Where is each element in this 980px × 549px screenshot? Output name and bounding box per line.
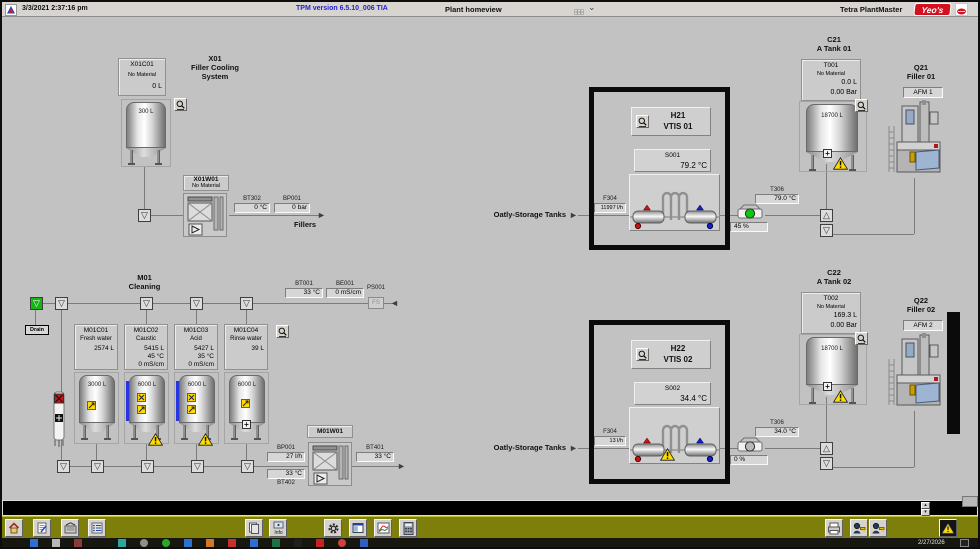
bt401-label: BT401 <box>356 445 394 452</box>
valve-icon[interactable]: ▽ <box>140 297 153 310</box>
tank-material: Rinse water <box>225 336 267 342</box>
tray-icon[interactable] <box>900 540 906 549</box>
sensor-value: 79.2 °C <box>635 161 710 170</box>
unit-id: H21 <box>648 111 708 120</box>
m01c03-info-box[interactable]: M01C03 Acid 5427 L 35 °C 0 mS/cm <box>174 324 218 370</box>
sprayball-icon <box>187 389 196 398</box>
vtis-exchanger-graphic[interactable] <box>629 407 720 464</box>
heat-exchanger-graphic[interactable] <box>308 442 352 491</box>
menu-list-button[interactable] <box>88 519 106 537</box>
info-button-label: Info <box>274 530 283 535</box>
pipe <box>914 411 915 467</box>
tank-volume: 0 L <box>119 83 165 90</box>
valve-icon[interactable]: ▽ <box>240 297 253 310</box>
x01-tank-graphic[interactable]: 300 L <box>121 99 171 167</box>
magnifier-icon[interactable] <box>855 332 868 345</box>
tank-material: No Material <box>802 304 860 310</box>
f304-value: 11997 l/h <box>594 203 626 213</box>
tank-id: T002 <box>802 295 860 302</box>
pipe <box>36 303 394 304</box>
keyboard-button[interactable] <box>61 519 79 537</box>
pipe <box>832 234 914 235</box>
m01w01-label-box[interactable]: M01W01 <box>307 425 353 438</box>
level-bar <box>176 381 179 421</box>
warning-icon[interactable] <box>148 433 163 451</box>
tank-capacity-label: 6000 L <box>129 382 165 389</box>
header-bar: 3/3/2021 2:37:16 pm TPM version 6.5.10_0… <box>2 2 978 17</box>
taskbar-app-icon[interactable] <box>184 539 192 547</box>
tank-temp: 35 °C <box>175 353 217 360</box>
layout-grid-icon[interactable] <box>574 5 584 23</box>
taskbar-app-icon[interactable] <box>360 539 368 547</box>
tank-volume: 2574 L <box>75 345 117 352</box>
valve-icon[interactable]: ▽ <box>91 460 104 473</box>
tank-id: X01C01 <box>119 61 165 68</box>
agitator-icon <box>137 401 146 410</box>
home-button[interactable] <box>5 519 23 537</box>
t001-info-box[interactable]: T001 No Material 0.0 L 0.00 Bar <box>801 59 861 101</box>
tank-volume: 39 L <box>225 345 267 352</box>
drain-valve-icon[interactable]: ▽ <box>30 297 43 310</box>
taskbar-app-icon[interactable] <box>338 539 346 547</box>
header-datetime: 3/3/2021 2:37:16 pm <box>22 5 88 12</box>
tank-capacity-label: 3000 L <box>79 382 115 389</box>
tray-date[interactable]: 2/27/2026 <box>918 540 945 546</box>
tank-conductivity: 0 mS/cm <box>175 361 217 368</box>
pipe <box>246 309 247 324</box>
flow-arrow-icon: ► <box>569 444 578 453</box>
tank-volume: 0.0 L <box>802 79 860 86</box>
brand-mini-icon <box>955 3 968 16</box>
scrollbar-stub[interactable] <box>962 496 978 507</box>
copy-page-button[interactable] <box>245 519 263 537</box>
pipe <box>765 448 826 449</box>
valve-icon[interactable]: ▽ <box>138 209 151 222</box>
bt001-value: 33 °C <box>285 288 323 298</box>
bt302-label: BT302 <box>234 196 270 203</box>
t306-value: 34.0 °C <box>755 427 799 437</box>
show-desktop-button[interactable] <box>960 539 969 547</box>
vtis-exchanger-graphic[interactable] <box>629 174 720 231</box>
tank-capacity-label: 18700 L <box>806 113 858 120</box>
warning-icon[interactable] <box>198 433 213 451</box>
agitator-plus-icon: + <box>823 382 832 391</box>
alarm-scroll-up-button[interactable]: ▴ <box>921 502 930 509</box>
logout-user-button[interactable] <box>869 519 887 537</box>
header-version: TPM version 6.5.10_006 TIA <box>296 5 388 12</box>
valve-icon[interactable]: ▽ <box>190 297 203 310</box>
yeos-logo: Yeo's <box>913 3 951 16</box>
tank-conductivity: 0 mS/cm <box>125 361 167 368</box>
afm1-box[interactable]: AFM 1 <box>903 87 943 98</box>
bp001-value: 0 bar <box>274 203 310 213</box>
m01c01-info-box[interactable]: M01C01 Fresh water 2574 L <box>74 324 118 370</box>
tank-volume: 169.3 L <box>802 312 860 319</box>
sensor-id: S001 <box>635 152 710 159</box>
alarm-scroll-down-button[interactable]: ▾ <box>921 509 930 516</box>
pipe <box>914 178 915 234</box>
sensor-id: S002 <box>635 385 710 392</box>
bp001-flow-label: BP001 <box>267 445 305 452</box>
oatly-source-label: Oatly-Storage Tanks <box>480 443 566 452</box>
drain-label: Drain <box>25 325 49 335</box>
taskbar-app-icon[interactable] <box>30 539 38 547</box>
windows-taskbar: 2/27/2026 <box>2 538 978 549</box>
pipe <box>146 309 147 324</box>
flow-arrow-icon: ► <box>397 462 406 471</box>
pipe <box>578 215 630 216</box>
flow-arrow-icon: ► <box>569 211 578 220</box>
brand-label: Tetra PlantMaster <box>840 5 902 14</box>
agitator-plus-icon: + <box>823 149 832 158</box>
bp001-flow-value: 27 l/h <box>267 452 305 462</box>
ps001-switch[interactable]: FS <box>368 297 384 309</box>
x01c01-info-box[interactable]: X01C01 No Material 0 L <box>118 58 166 96</box>
flow-arrow-icon: ◄ <box>390 299 399 308</box>
be001-label: BE001 <box>326 281 364 288</box>
pipe <box>719 448 739 449</box>
valve-position-value: 45 % <box>730 222 768 232</box>
tank-id: M01C04 <box>225 327 267 334</box>
trend-chart-button[interactable] <box>374 519 392 537</box>
fillers-label: Fillers <box>294 220 316 229</box>
tank-material: Fresh water <box>75 336 117 342</box>
valve-icon[interactable]: ▽ <box>57 460 70 473</box>
print-button[interactable] <box>825 519 843 537</box>
valve-icon[interactable]: ▽ <box>241 460 254 473</box>
valve-up-icon[interactable]: △ <box>820 442 833 455</box>
toolbar: Info <box>2 516 978 538</box>
pipe <box>765 215 826 216</box>
alarm-bar[interactable]: 2021-03-03 UNACK 250 Cleaning None TPOS0… <box>2 500 978 516</box>
m01c04-info-box[interactable]: M01C04 Rinse water 39 L <box>224 324 268 370</box>
c22-title: C22 A Tank 02 <box>808 268 860 286</box>
tank-capacity-label: 300 L <box>126 109 166 116</box>
agitator-plus-icon: + <box>242 420 251 429</box>
sensor-value: 34.4 °C <box>635 394 710 403</box>
taskbar-app-icon[interactable] <box>118 539 126 547</box>
calculator-button[interactable] <box>399 519 417 537</box>
tank-pressure: 0.00 Bar <box>802 89 860 96</box>
t306-label: T306 <box>755 420 799 427</box>
tank-id: T001 <box>802 62 860 69</box>
alarm-summary-button[interactable] <box>939 519 957 537</box>
pipe <box>719 215 739 216</box>
page-title: Plant homeview <box>445 5 502 14</box>
bt402-value: 33 °C <box>267 469 305 479</box>
bp001-label: BP001 <box>274 196 310 203</box>
pipe <box>144 167 145 215</box>
pipe <box>35 309 36 325</box>
tank-capacity-label: 18700 L <box>806 346 858 353</box>
pipe <box>196 309 197 324</box>
pipe <box>578 448 630 449</box>
be001-value: 0 mS/cm <box>326 288 364 298</box>
taskbar-app-icon[interactable] <box>272 539 280 547</box>
t306-value: 79.0 °C <box>755 194 799 204</box>
taskbar-app-icon[interactable] <box>96 539 104 547</box>
taskbar-app-icon[interactable] <box>250 539 258 547</box>
valve-position-value: 0 % <box>730 455 768 465</box>
app-logo-icon <box>5 3 17 21</box>
f304-label: F304 <box>594 429 626 436</box>
bt402-label: BT402 <box>267 480 305 487</box>
sprayball-icon <box>137 389 146 398</box>
agitator-icon <box>241 395 250 404</box>
f304-label: F304 <box>594 196 626 203</box>
tank-id: M01C03 <box>175 327 217 334</box>
tank-capacity-label: 6000 L <box>179 382 215 389</box>
pipe <box>229 215 319 216</box>
q21-title: Q21 Filler 01 <box>898 63 944 81</box>
taskbar-app-icon[interactable] <box>52 539 60 547</box>
valve-icon[interactable]: ▽ <box>55 297 68 310</box>
tank-id: M01C01 <box>75 327 117 334</box>
tank-volume: 5427 L <box>175 345 217 352</box>
tank-pressure: 0.00 Bar <box>802 322 860 329</box>
valve-down-icon[interactable]: ▽ <box>820 457 833 470</box>
scada-screen: 3/3/2021 2:37:16 pm TPM version 6.5.10_0… <box>0 0 980 549</box>
c21-title: C21 A Tank 01 <box>808 35 860 53</box>
warning-icon[interactable] <box>833 390 848 408</box>
flow-arrow-icon: ► <box>317 211 326 220</box>
magnifier-icon[interactable] <box>174 98 187 111</box>
taskbar-app-icon[interactable] <box>140 539 148 547</box>
s001-status-box[interactable]: S001 79.2 °C <box>634 149 711 172</box>
unit-id: H22 <box>648 344 708 353</box>
tank-material: No Material <box>802 71 860 77</box>
window-button[interactable] <box>349 519 367 537</box>
warning-icon[interactable] <box>660 448 675 466</box>
bt001-label: BT001 <box>285 281 323 288</box>
view-selector-chevron-icon[interactable]: ⌄ <box>588 2 596 13</box>
m01c02-info-box[interactable]: M01C02 Caustic 5415 L 45 °C 0 mS/cm <box>124 324 168 370</box>
annotation-bar <box>947 312 960 434</box>
taskbar-app-icon[interactable] <box>294 539 302 547</box>
x01-title: X01 Filler Cooling System <box>180 54 250 81</box>
t306-label: T306 <box>755 187 799 194</box>
cleaning-tank-m01c01[interactable]: 3000 L <box>74 372 119 444</box>
cleaning-tank-m01c04[interactable]: 6000 L + <box>224 372 269 444</box>
agitator-icon <box>187 401 196 410</box>
m01-title: M01 Cleaning <box>117 273 172 291</box>
taskbar-app-icon[interactable] <box>316 539 324 547</box>
magnifier-icon[interactable] <box>276 325 289 338</box>
valve-down-icon[interactable]: ▽ <box>820 224 833 237</box>
taskbar-app-icon[interactable] <box>74 539 82 547</box>
taskbar-app-icon[interactable] <box>228 539 236 547</box>
ps001-label: PS001 <box>366 285 386 292</box>
bt401-value: 33 °C <box>356 452 394 462</box>
tank-volume: 5415 L <box>125 345 167 352</box>
settings-gear-button[interactable] <box>324 519 342 537</box>
pump-column-graphic[interactable] <box>51 390 67 453</box>
tank-material: No Material <box>119 72 165 78</box>
tank-capacity-label: 6000 L <box>229 382 265 389</box>
tank-material: Caustic <box>125 336 167 342</box>
filler-machine-graphic[interactable] <box>882 333 944 416</box>
oatly-source-label: Oatly-Storage Tanks <box>480 210 566 219</box>
taskbar-app-icon[interactable] <box>206 539 214 547</box>
heat-exchanger-graphic[interactable] <box>183 193 227 242</box>
agitator-icon <box>87 397 96 406</box>
valve-icon[interactable]: ▽ <box>191 460 204 473</box>
valve-up-icon[interactable]: △ <box>820 209 833 222</box>
unit-name: VTIS 02 <box>648 355 708 364</box>
pipe <box>832 467 914 468</box>
tank-id: M01C02 <box>125 327 167 334</box>
tank-material: Acid <box>175 336 217 342</box>
login-user-button[interactable] <box>850 519 868 537</box>
bt302-value: 0 °C <box>234 203 270 213</box>
s002-status-box[interactable]: S002 34.4 °C <box>634 382 711 405</box>
report-button[interactable] <box>33 519 51 537</box>
taskbar-app-icon[interactable] <box>162 539 170 547</box>
q22-title: Q22 Filler 02 <box>898 296 944 314</box>
info-button[interactable]: Info <box>269 519 287 537</box>
magnifier-icon[interactable] <box>855 99 868 112</box>
level-bar <box>126 381 129 421</box>
tank-temp: 45 °C <box>125 353 167 360</box>
afm2-box[interactable]: AFM 2 <box>903 320 943 331</box>
tray-icon[interactable] <box>888 540 894 549</box>
x01w01-label-box[interactable]: X01W01 No Material <box>183 175 229 191</box>
h22-header-box[interactable]: H22 VTIS 02 <box>631 340 711 369</box>
warning-icon[interactable] <box>833 157 848 175</box>
f304-value: 13 l/h <box>594 436 626 446</box>
unit-name: VTIS 01 <box>648 122 708 131</box>
t002-info-box[interactable]: T002 No Material 169.3 L 0.00 Bar <box>801 292 861 334</box>
h21-header-box[interactable]: H21 VTIS 01 <box>631 107 711 136</box>
valve-icon[interactable]: ▽ <box>141 460 154 473</box>
filler-machine-graphic[interactable] <box>882 100 944 183</box>
